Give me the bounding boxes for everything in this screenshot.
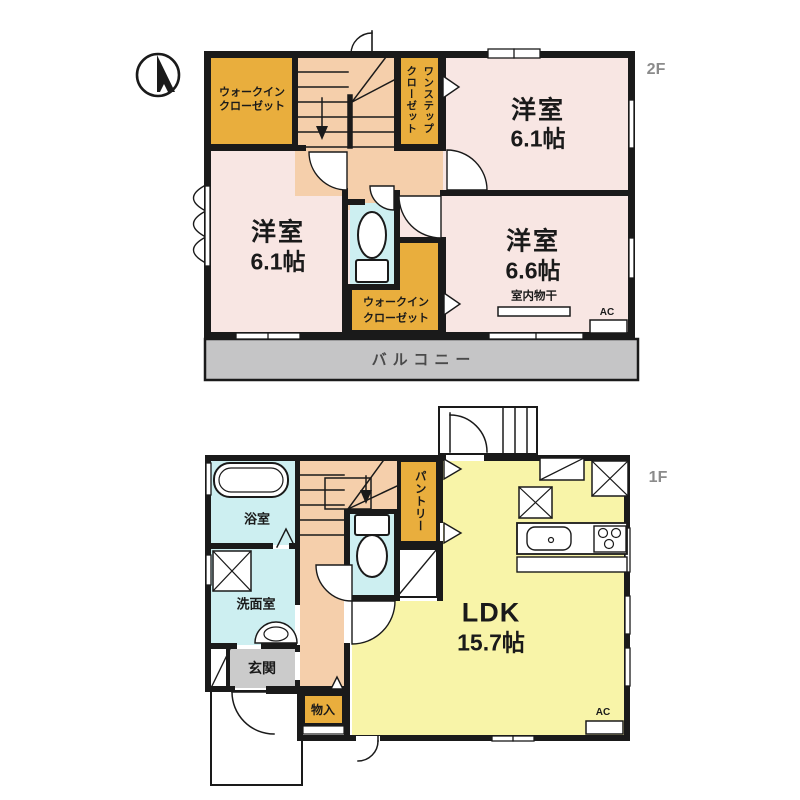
pantry-label: パントリー [413, 470, 425, 533]
walkin-closet-bottom-label-1: ウォークイン [363, 298, 429, 309]
entrance-porch [211, 691, 302, 785]
floor2-plan [137, 31, 638, 380]
indoor-drying-label: 室内物干 [511, 291, 557, 303]
one-step-closet-label-2: クローゼット [406, 66, 417, 135]
bedroom-top-right-size: 6.1帖 [511, 128, 566, 151]
storage-label: 物入 [311, 704, 335, 716]
bathtub-icon [214, 463, 288, 497]
bedroom-top-right-name: 洋室 [511, 99, 565, 124]
ac-unit-1f [586, 721, 623, 734]
ac-unit-2f [590, 320, 627, 333]
floor-plan-page: 2F ウォークイン クローゼット ワンステップ クローゼット 洋室 6.1帖 洋… [0, 0, 800, 800]
rear-door [356, 736, 380, 761]
bedroom-bottom-right-name: 洋室 [506, 230, 560, 255]
balcony-label: バルコニー [372, 353, 477, 368]
north-compass-icon [137, 54, 179, 96]
floor-plan-drawing [0, 0, 800, 800]
entrance-label: 玄関 [248, 661, 276, 675]
ac-label-2f: AC [600, 308, 614, 318]
bedroom-left-size: 6.1帖 [251, 251, 306, 274]
ldk-name: LDK [462, 600, 521, 627]
ldk-size: 15.7帖 [457, 632, 525, 655]
walkin-closet-top-label-1: ウォークイン [219, 88, 285, 99]
washroom-label: 洗面室 [236, 598, 275, 611]
ac-label-1f: AC [596, 708, 610, 718]
toilet-icon-1f [355, 515, 389, 577]
porch-step [303, 726, 344, 734]
bedroom-bottom-right-size: 6.6帖 [506, 260, 561, 283]
bedroom-left-name: 洋室 [251, 221, 305, 246]
indoor-drying-bar [498, 307, 570, 316]
walkin-closet-bottom-label-2: クローゼット [363, 314, 429, 325]
walkin-closet-top-label-2: クローゼット [219, 102, 285, 113]
stair-window-arc [351, 33, 372, 54]
floor2-casement-windows [194, 186, 205, 262]
floor1-label: 1F [649, 470, 668, 486]
bathroom-label: 浴室 [244, 513, 270, 526]
counter-front [517, 557, 627, 572]
toilet-icon-2f [356, 212, 388, 282]
back-porch [439, 407, 537, 454]
washing-machine-icon [213, 551, 251, 591]
floor2-label: 2F [647, 62, 666, 78]
one-step-closet-label-1: ワンステップ [423, 66, 434, 135]
